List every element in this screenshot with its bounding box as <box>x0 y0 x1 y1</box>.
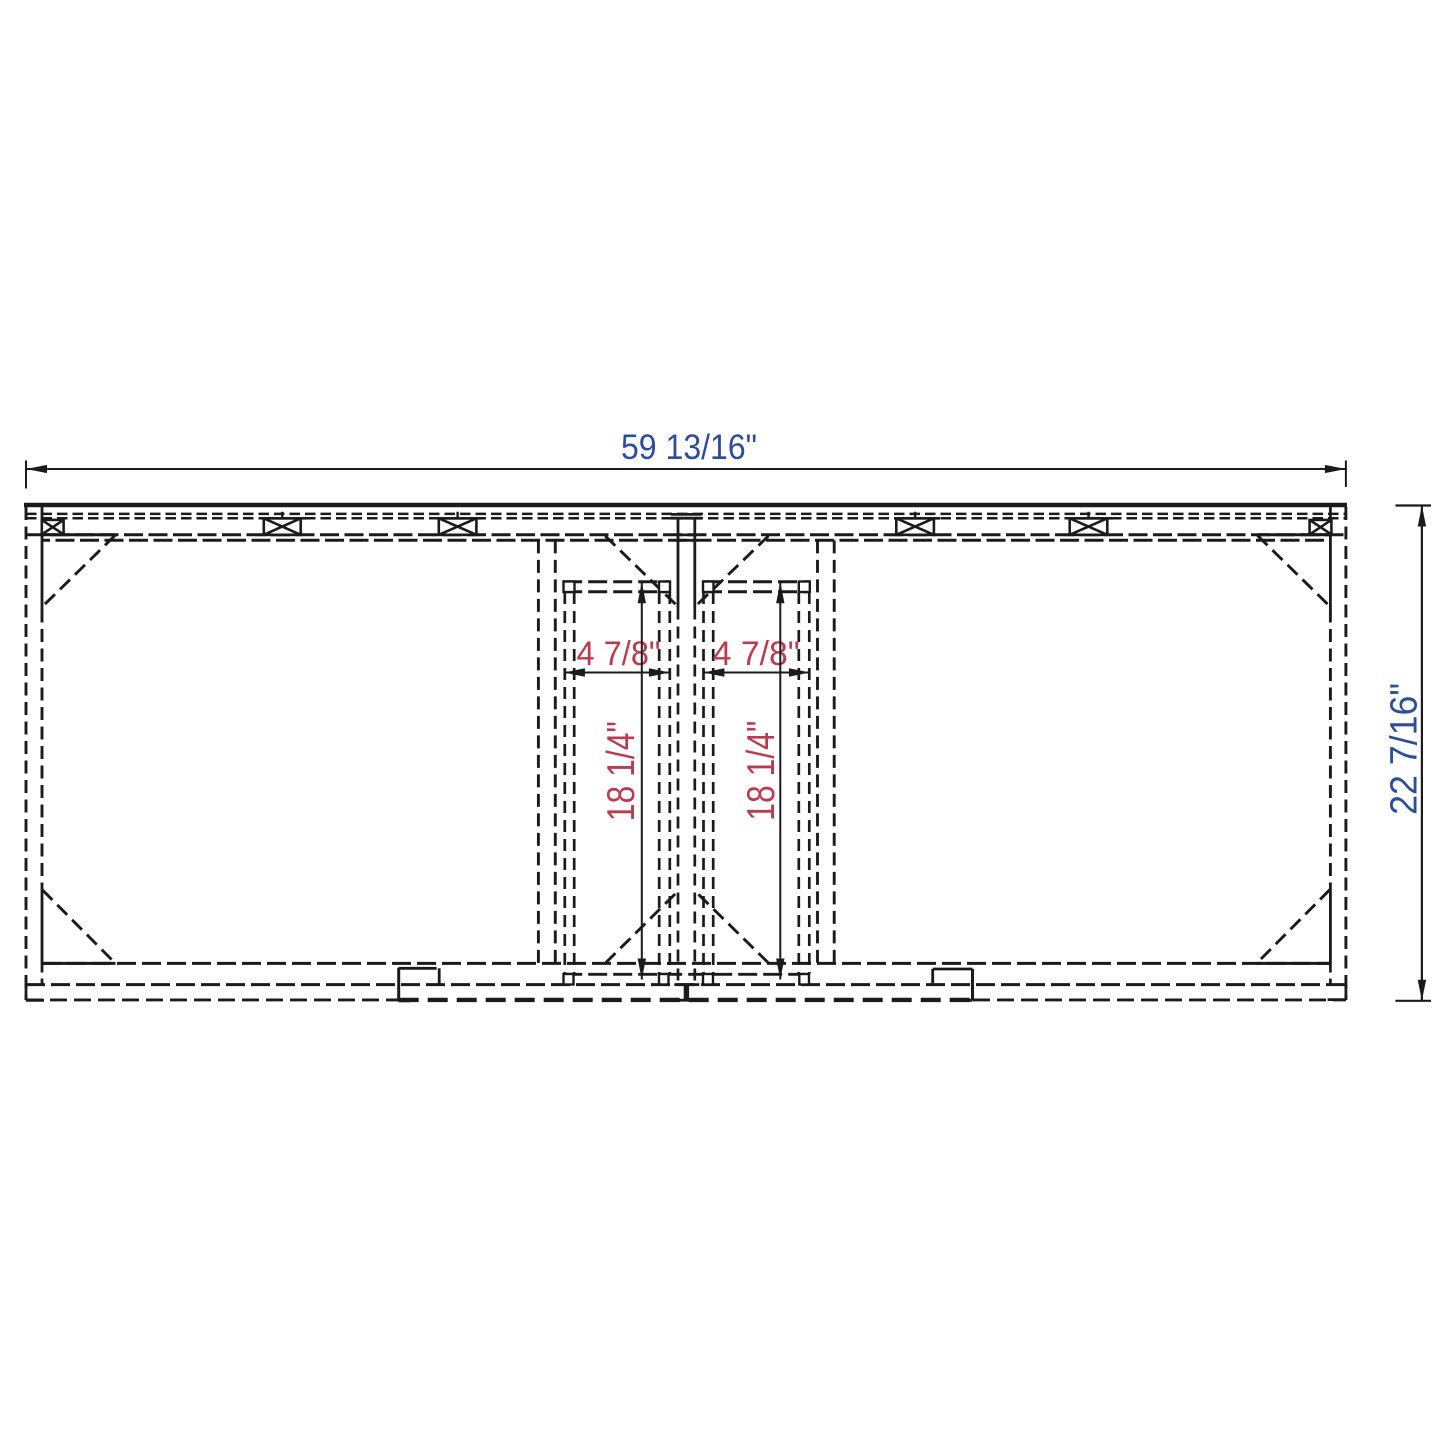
svg-text:18 1/4": 18 1/4" <box>740 721 783 821</box>
svg-text:22 7/16": 22 7/16" <box>1383 683 1425 815</box>
svg-text:4 7/8": 4 7/8" <box>713 635 800 673</box>
svg-text:18 1/4": 18 1/4" <box>600 721 643 821</box>
svg-text:4 7/8": 4 7/8" <box>577 635 661 673</box>
svg-text:59 13/16": 59 13/16" <box>621 427 757 467</box>
